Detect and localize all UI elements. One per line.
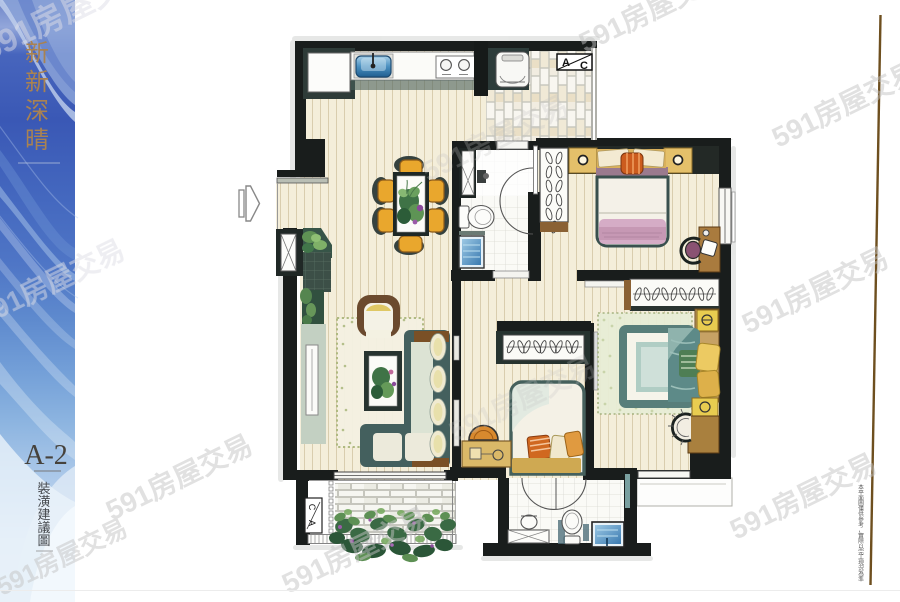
svg-text:深: 深 xyxy=(25,98,49,125)
svg-text:晴: 晴 xyxy=(25,127,49,154)
svg-text:A-2: A-2 xyxy=(24,440,68,471)
svg-text:591房屋交易: 591房屋交易 xyxy=(737,241,894,339)
svg-text:591房屋交易: 591房屋交易 xyxy=(767,55,900,153)
svg-text:591房屋交易: 591房屋交易 xyxy=(101,428,258,526)
svg-text:A: A xyxy=(307,520,317,526)
svg-text:A: A xyxy=(562,57,570,69)
svg-text:C: C xyxy=(307,504,317,511)
svg-text:準: 準 xyxy=(858,575,864,583)
svg-text:C: C xyxy=(580,60,588,72)
svg-text:圖: 圖 xyxy=(37,533,50,548)
svg-text:新: 新 xyxy=(25,69,49,96)
